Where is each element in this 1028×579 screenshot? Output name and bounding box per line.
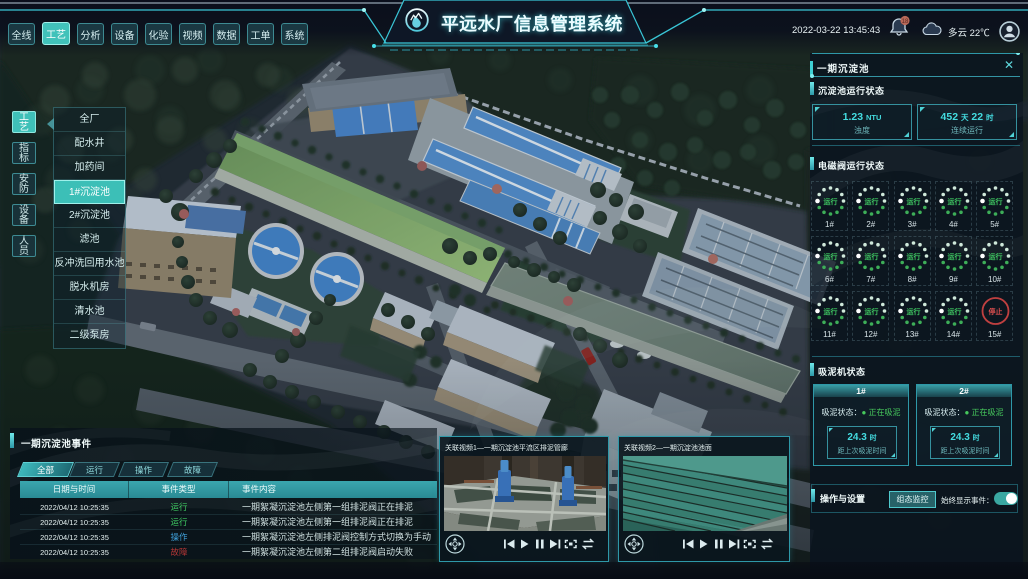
svg-text:运行: 运行: [865, 197, 879, 206]
svg-text:运行: 运行: [906, 197, 920, 206]
svg-text:运行: 运行: [824, 252, 838, 261]
svg-text:运行: 运行: [824, 307, 838, 316]
svg-text:运行: 运行: [906, 252, 920, 261]
svg-text:运行: 运行: [865, 252, 879, 261]
svg-text:停止: 停止: [989, 307, 1003, 316]
svg-text:运行: 运行: [865, 307, 879, 316]
svg-text:运行: 运行: [947, 307, 961, 316]
svg-text:运行: 运行: [989, 252, 1003, 261]
svg-text:运行: 运行: [989, 197, 1003, 206]
svg-text:运行: 运行: [947, 252, 961, 261]
svg-text:运行: 运行: [947, 197, 961, 206]
svg-text:18: 18: [902, 19, 909, 25]
svg-text:运行: 运行: [824, 197, 838, 206]
svg-text:运行: 运行: [906, 307, 920, 316]
